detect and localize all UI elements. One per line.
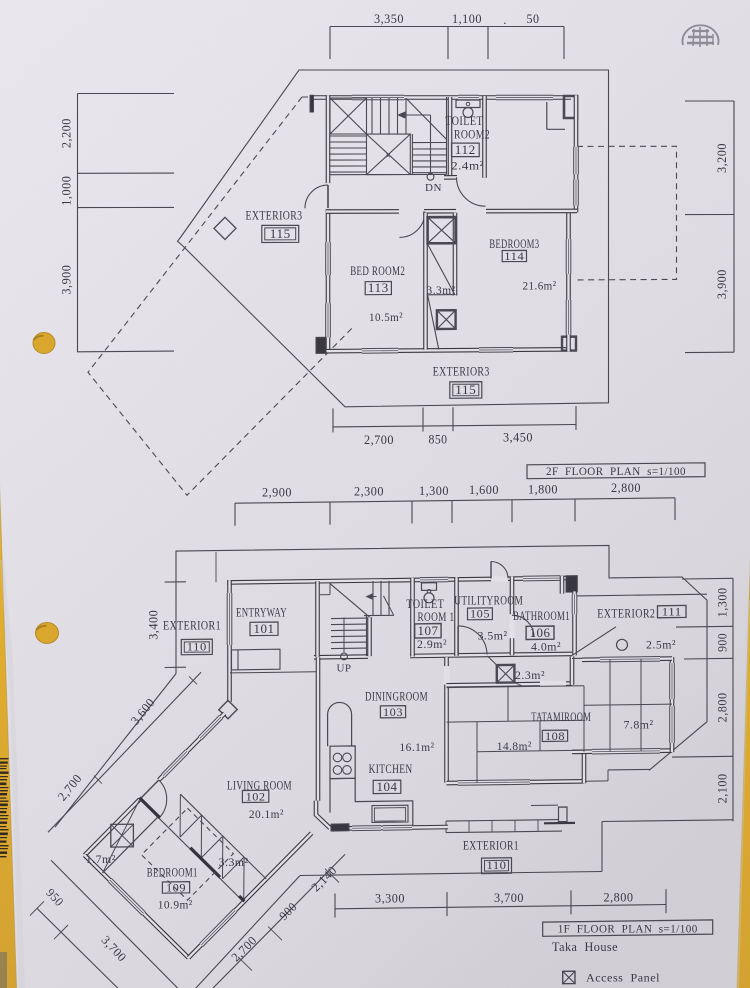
svg-text:TOILET: TOILET — [406, 597, 444, 611]
svg-text:3,200: 3,200 — [715, 143, 729, 173]
svg-text:ROOM2: ROOM2 — [454, 127, 490, 141]
svg-text:1,600: 1,600 — [469, 483, 499, 497]
svg-text:BED ROOM2: BED ROOM2 — [350, 264, 405, 278]
svg-text:102: 102 — [246, 789, 266, 803]
svg-text:10.9m²: 10.9m² — [158, 898, 193, 912]
svg-text:110: 110 — [487, 858, 507, 872]
svg-text:2,100: 2,100 — [716, 773, 730, 803]
svg-text:2,800: 2,800 — [611, 481, 641, 495]
svg-text:2.5m²: 2.5m² — [646, 638, 676, 652]
svg-text:1,300: 1,300 — [419, 484, 449, 498]
svg-text:108: 108 — [545, 729, 565, 743]
svg-text:112: 112 — [455, 143, 476, 157]
svg-text:2,800: 2,800 — [716, 692, 730, 722]
svg-text:7.8m²: 7.8m² — [624, 718, 654, 732]
svg-text:BEDROOM1: BEDROOM1 — [147, 866, 198, 880]
svg-text:115: 115 — [270, 227, 291, 241]
svg-text:1,300: 1,300 — [716, 587, 730, 617]
svg-text:114: 114 — [504, 249, 524, 263]
svg-text:UP: UP — [336, 662, 351, 674]
svg-text:3,900: 3,900 — [60, 265, 74, 295]
svg-text:101: 101 — [254, 622, 275, 636]
svg-text:Access Panel: Access Panel — [586, 970, 660, 984]
svg-text:EXTERIOR3: EXTERIOR3 — [246, 208, 303, 222]
svg-text:.: . — [503, 13, 507, 27]
svg-text:3.5m²: 3.5m² — [478, 629, 508, 643]
svg-text:900: 900 — [716, 633, 730, 652]
svg-text:ROOM 1: ROOM 1 — [418, 610, 455, 624]
svg-text:103: 103 — [383, 705, 403, 719]
svg-text:16.1m²: 16.1m² — [400, 740, 435, 754]
svg-text:3,450: 3,450 — [503, 431, 533, 445]
svg-text:2.3m²: 2.3m² — [515, 670, 545, 682]
svg-text:110: 110 — [187, 640, 207, 654]
svg-text:106: 106 — [530, 626, 551, 640]
svg-text:EXTERIOR3: EXTERIOR3 — [433, 364, 490, 378]
svg-text:UTILITYROOM: UTILITYROOM — [454, 594, 523, 608]
svg-text:3,350: 3,350 — [374, 12, 404, 26]
svg-text:14.8m²: 14.8m² — [497, 739, 532, 753]
svg-text:1F FLOOR PLAN s=1/100: 1F FLOOR PLAN s=1/100 — [558, 921, 698, 935]
svg-text:3,900: 3,900 — [715, 269, 729, 299]
svg-text:113: 113 — [368, 281, 389, 295]
svg-text:3,400: 3,400 — [147, 610, 161, 640]
svg-text:ENTRYWAY: ENTRYWAY — [236, 606, 287, 620]
svg-text:DN: DN — [425, 182, 442, 194]
svg-text:2,300: 2,300 — [354, 485, 384, 499]
svg-text:3,700: 3,700 — [494, 891, 524, 905]
svg-text:TATAMIROOM: TATAMIROOM — [531, 710, 591, 724]
svg-text:TOILET: TOILET — [445, 114, 483, 128]
svg-text:2.9m²: 2.9m² — [417, 637, 447, 651]
svg-text:×: × — [385, 151, 391, 162]
svg-text:109: 109 — [166, 881, 186, 895]
svg-text:EXTERIOR2: EXTERIOR2 — [597, 607, 655, 621]
svg-text:1,800: 1,800 — [528, 482, 558, 496]
svg-text:BATHROOM1: BATHROOM1 — [513, 609, 570, 623]
svg-text:EXTERIOR1: EXTERIOR1 — [163, 618, 221, 632]
svg-text:2,900: 2,900 — [262, 486, 292, 500]
svg-text:DININGROOM: DININGROOM — [365, 690, 428, 704]
svg-text:2,700: 2,700 — [364, 433, 394, 447]
svg-text:2F FLOOR PLAN s=1/100: 2F FLOOR PLAN s=1/100 — [546, 464, 686, 478]
svg-text:50: 50 — [527, 12, 540, 26]
svg-text:1,100: 1,100 — [452, 12, 482, 26]
svg-text:10.5m²: 10.5m² — [369, 310, 403, 324]
svg-text:104: 104 — [377, 780, 398, 794]
svg-text:21.6m²: 21.6m² — [523, 279, 557, 293]
svg-text:3,300: 3,300 — [375, 891, 405, 905]
svg-text:115: 115 — [455, 383, 476, 397]
svg-text:20.1m²: 20.1m² — [249, 807, 284, 821]
svg-text:2,200: 2,200 — [60, 118, 74, 148]
svg-text:KITCHEN: KITCHEN — [369, 762, 413, 776]
svg-text:105: 105 — [470, 607, 490, 621]
svg-text:1,000: 1,000 — [60, 176, 74, 206]
svg-text:2,800: 2,800 — [604, 890, 634, 904]
svg-text:4.0m²: 4.0m² — [531, 639, 561, 653]
svg-text:850: 850 — [429, 432, 448, 446]
svg-text:3.3m²: 3.3m² — [427, 285, 456, 297]
svg-text:1.7m²: 1.7m² — [86, 854, 116, 866]
svg-text:111: 111 — [662, 605, 682, 619]
svg-text:3.3m²: 3.3m² — [219, 857, 249, 869]
svg-text:2.4m²: 2.4m² — [451, 158, 484, 172]
svg-text:Taka House: Taka House — [552, 939, 618, 954]
svg-text:EXTERIOR1: EXTERIOR1 — [463, 839, 519, 853]
